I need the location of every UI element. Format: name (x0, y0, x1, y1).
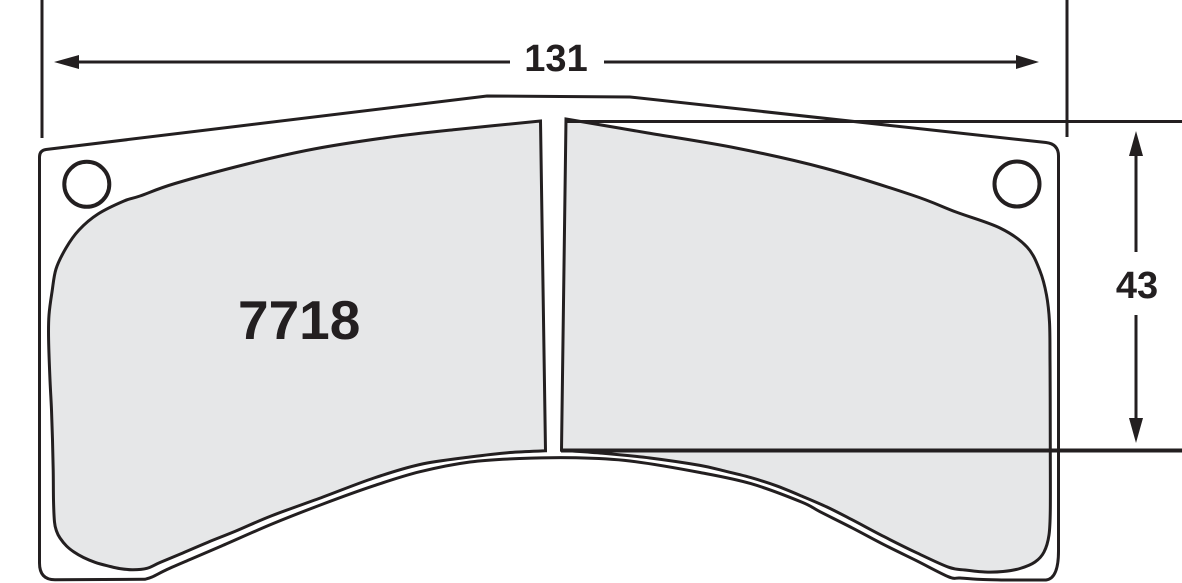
svg-text:43: 43 (1116, 265, 1158, 307)
svg-text:7718: 7718 (238, 289, 360, 351)
svg-text:131: 131 (524, 38, 587, 80)
